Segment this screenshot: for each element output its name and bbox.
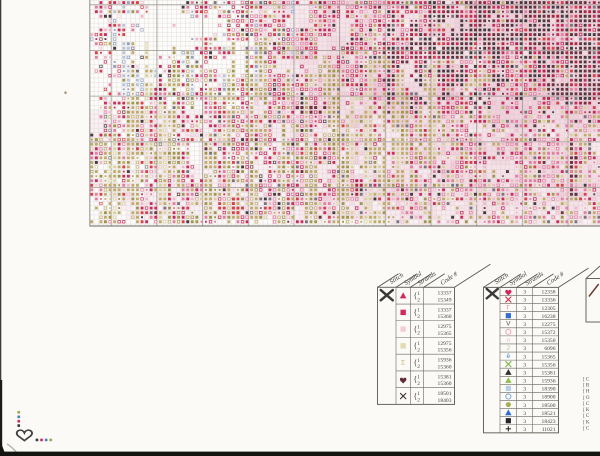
svg-text:15365: 15365 [542, 354, 556, 360]
svg-text:V: V [506, 321, 511, 328]
svg-text:2: 2 [417, 297, 420, 303]
svg-text:16238: 16238 [542, 314, 556, 320]
svg-text:13337: 13337 [438, 291, 452, 297]
svg-text:15356: 15356 [542, 362, 556, 368]
svg-text:18423: 18423 [542, 419, 556, 425]
svg-text:15360: 15360 [438, 314, 452, 320]
svg-text:12975: 12975 [438, 341, 452, 347]
svg-text:18390: 18390 [542, 387, 556, 393]
svg-text:3: 3 [523, 314, 526, 320]
svg-text:3: 3 [523, 330, 526, 336]
svg-text:∩: ∩ [506, 337, 511, 344]
svg-text:15360: 15360 [438, 364, 452, 370]
svg-text:13337: 13337 [438, 307, 452, 313]
svg-text:12338: 12338 [542, 290, 556, 296]
svg-text:2: 2 [417, 331, 420, 337]
svg-text:15360: 15360 [438, 381, 452, 387]
svg-text:2: 2 [417, 381, 420, 387]
svg-text:[ B: [ B [583, 383, 590, 388]
svg-text:12975: 12975 [438, 324, 452, 330]
svg-text:Γ: Γ [507, 305, 511, 312]
svg-text:15350: 15350 [542, 338, 556, 344]
svg-text:2: 2 [417, 347, 420, 353]
svg-text:3: 3 [523, 338, 526, 344]
svg-text:18900: 18900 [542, 395, 556, 401]
svg-text:15381: 15381 [438, 374, 452, 380]
svg-text:1: 1 [417, 308, 420, 314]
svg-text:2: 2 [417, 398, 420, 404]
svg-text:Σ: Σ [401, 360, 405, 367]
svg-text:[ O: [ O [583, 396, 590, 401]
svg-text:3: 3 [523, 387, 526, 393]
svg-text:12275: 12275 [542, 322, 556, 328]
svg-text:3: 3 [523, 370, 526, 376]
svg-text:3: 3 [523, 403, 526, 409]
svg-text:[ C: [ C [583, 414, 590, 419]
svg-text:15356: 15356 [438, 348, 452, 354]
svg-text:3: 3 [523, 427, 526, 433]
svg-text:[ C: [ C [583, 377, 590, 382]
svg-text:18403: 18403 [438, 398, 452, 404]
svg-text:1: 1 [417, 341, 420, 347]
svg-text:3: 3 [523, 419, 526, 425]
svg-text:2: 2 [417, 364, 420, 370]
svg-text:2: 2 [417, 314, 420, 320]
svg-text:[ C: [ C [583, 427, 590, 432]
svg-text:1: 1 [417, 358, 420, 364]
svg-text:15349: 15349 [438, 297, 452, 303]
svg-text:18521: 18521 [542, 411, 556, 417]
svg-text:3: 3 [523, 362, 526, 368]
svg-text:3: 3 [523, 346, 526, 352]
svg-text:18501: 18501 [438, 391, 452, 397]
svg-text:15365: 15365 [438, 331, 452, 337]
svg-text:2: 2 [507, 345, 511, 352]
svg-text:3: 3 [523, 306, 526, 312]
svg-text:12305: 12305 [542, 306, 556, 312]
svg-text:1: 1 [417, 324, 420, 330]
svg-text:18500: 18500 [542, 403, 556, 409]
svg-text:3: 3 [523, 395, 526, 401]
svg-text:15381: 15381 [542, 370, 556, 376]
svg-text:3: 3 [523, 379, 526, 385]
svg-text:15936: 15936 [542, 379, 556, 385]
svg-text:1: 1 [417, 375, 420, 381]
svg-text:15372: 15372 [542, 330, 556, 336]
svg-text:3: 3 [523, 354, 526, 360]
svg-text:13336: 13336 [542, 298, 556, 304]
svg-text:[ K: [ K [583, 420, 590, 425]
svg-text:[ H: [ H [583, 390, 590, 395]
svg-text:11021: 11021 [542, 427, 556, 433]
svg-text:1: 1 [417, 391, 420, 397]
svg-text:15936: 15936 [438, 358, 452, 364]
svg-text:3: 3 [523, 322, 526, 328]
svg-text:ê: ê [507, 353, 511, 360]
svg-text:[ K: [ K [583, 408, 590, 413]
svg-text:1: 1 [417, 291, 420, 297]
svg-text:3: 3 [523, 411, 526, 417]
svg-text:[ C: [ C [583, 402, 590, 407]
svg-text:6096: 6096 [544, 346, 555, 352]
svg-text:3: 3 [523, 298, 526, 304]
svg-text:3: 3 [523, 290, 526, 296]
